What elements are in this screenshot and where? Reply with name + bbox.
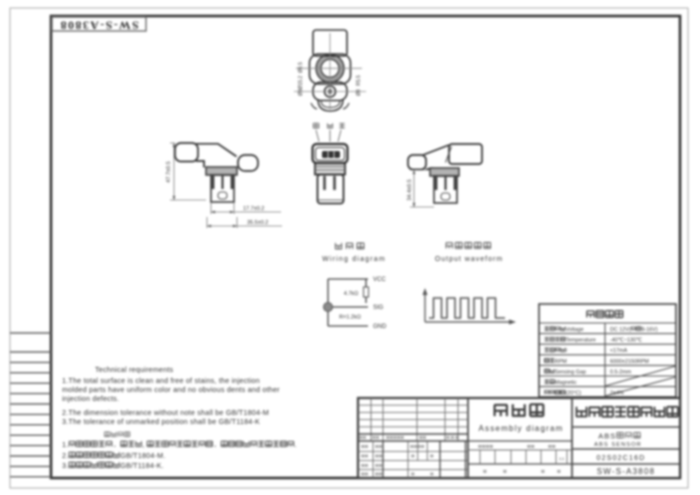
svg-text:Sensing Gap: Sensing Gap bbox=[555, 369, 586, 375]
svg-text:R=1.2kΩ: R=1.2kΩ bbox=[339, 315, 361, 321]
svg-text:injection defects.: injection defects. bbox=[62, 394, 119, 403]
svg-text:4.7kΩ: 4.7kΩ bbox=[344, 291, 359, 297]
svg-text:Ø9: Ø9 bbox=[298, 89, 304, 96]
svg-text:0.5-2mm: 0.5-2mm bbox=[610, 369, 632, 375]
svg-text:,: , bbox=[142, 440, 144, 449]
svg-text:<17mA: <17mA bbox=[610, 348, 628, 354]
svg-text:SIG: SIG bbox=[373, 305, 384, 311]
svg-text:1:1: 1:1 bbox=[559, 457, 564, 461]
svg-text:2±4%: 2±4% bbox=[610, 391, 624, 397]
svg-text:GB/T1184-K.: GB/T1184-K. bbox=[120, 461, 164, 470]
svg-text:3.The tolerance of unmarked po: 3.The tolerance of unmarked position sha… bbox=[62, 417, 260, 426]
svg-text:47.7±0.5: 47.7±0.5 bbox=[166, 161, 172, 182]
svg-text:ABS: ABS bbox=[598, 432, 616, 441]
svg-text:Ø8: Ø8 bbox=[356, 89, 362, 96]
svg-text:17.7±0.2: 17.7±0.2 bbox=[243, 206, 264, 212]
svg-text:SW-S-A3808: SW-S-A3808 bbox=[59, 18, 139, 32]
svg-text:.: . bbox=[295, 440, 297, 449]
svg-text:.: . bbox=[450, 436, 451, 440]
svg-text:9-16V): 9-16V) bbox=[642, 327, 658, 333]
svg-text:GND: GND bbox=[373, 324, 387, 330]
svg-text:2.: 2. bbox=[62, 451, 68, 460]
svg-text:Wiring diagram: Wiring diagram bbox=[322, 256, 386, 263]
svg-text:Technical requirements: Technical requirements bbox=[95, 365, 174, 374]
svg-text:02S02C16D: 02S02C16D bbox=[597, 455, 646, 462]
svg-text:Voltage: Voltage bbox=[566, 327, 584, 333]
svg-text:R5.5: R5.5 bbox=[356, 75, 362, 86]
svg-text:DC 12V(: DC 12V( bbox=[610, 327, 631, 333]
svg-text:2.The dimension tolerance with: 2.The dimension tolerance without note s… bbox=[62, 408, 269, 417]
svg-text:1.: 1. bbox=[62, 440, 68, 449]
svg-text:6000±2150RPM: 6000±2150RPM bbox=[610, 359, 649, 365]
svg-text:Ø15.2: Ø15.2 bbox=[298, 75, 304, 89]
svg-text:Temperature: Temperature bbox=[566, 338, 596, 344]
svg-text:3.: 3. bbox=[62, 461, 68, 470]
svg-text:SW-S-A3808: SW-S-A3808 bbox=[597, 467, 656, 476]
svg-text:34.4±0.5: 34.4±0.5 bbox=[407, 179, 413, 200]
svg-text:GB/T1804-M.: GB/T1804-M. bbox=[120, 451, 165, 460]
svg-text:35.5±0.2: 35.5±0.2 bbox=[247, 220, 268, 226]
svg-text:VCC: VCC bbox=[373, 277, 386, 283]
svg-text:-40℃~130℃: -40℃~130℃ bbox=[610, 338, 642, 344]
svg-text:Output waveform: Output waveform bbox=[435, 256, 503, 263]
svg-text:.: . bbox=[454, 436, 455, 440]
svg-text:molded parts have uniform colo: molded parts have uniform color and no o… bbox=[62, 385, 280, 394]
svg-text:1.The total surface is clean a: 1.The total surface is clean and free of… bbox=[62, 376, 260, 385]
svg-text:Ø6.5: Ø6.5 bbox=[298, 62, 304, 73]
svg-text:ABS SENSOR: ABS SENSOR bbox=[594, 442, 642, 448]
svg-text:I: I bbox=[566, 348, 568, 354]
svg-text:RPM: RPM bbox=[555, 359, 567, 365]
svg-text:(20°C): (20°C) bbox=[566, 391, 582, 397]
svg-text:Assembly diagram: Assembly diagram bbox=[478, 424, 563, 433]
svg-text:Magnetic: Magnetic bbox=[555, 380, 577, 386]
